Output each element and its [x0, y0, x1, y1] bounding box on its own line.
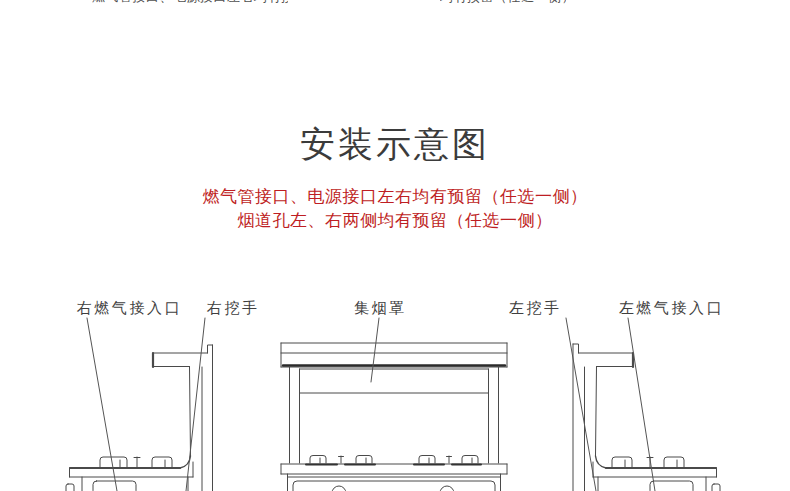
burner-grate	[462, 456, 478, 464]
drawer-handle	[93, 481, 136, 491]
counter-body	[70, 462, 194, 477]
hood-band	[281, 343, 507, 367]
side-columns	[290, 367, 499, 463]
leader-line	[566, 318, 596, 491]
installation-diagram	[40, 295, 760, 491]
cabinet-foot	[712, 484, 720, 491]
right-side-view	[566, 318, 720, 491]
section-title: 安装示意图	[0, 121, 790, 168]
notice-line-1: 燃气管接口、电源接口左右均有预留（任选一侧）	[0, 185, 790, 208]
drawer-front	[293, 481, 495, 491]
cooktop-band	[281, 464, 507, 477]
top-cutoff-text-left: 燃气管接口、电源接口左右均有预留	[92, 0, 288, 4]
top-cutoff-text-right: 均有预留（任选一侧）	[440, 0, 566, 4]
grate-center-pin	[447, 456, 452, 463]
burner-grate	[152, 457, 172, 467]
drawer-knob	[332, 486, 346, 491]
grate-center-pin	[134, 457, 140, 467]
cabinet-edges	[598, 477, 706, 491]
cabinet-edges	[82, 477, 188, 491]
drawer-knob	[440, 486, 454, 491]
counter-hook	[596, 456, 607, 468]
grate-center-pin	[339, 456, 344, 463]
drawer-handle	[650, 481, 693, 491]
burner-grate	[356, 456, 372, 464]
drawer-sides	[288, 477, 501, 491]
front-view	[281, 318, 507, 491]
back-panel	[202, 345, 213, 491]
notice-line-2: 烟道孔左、右两侧均有预留（任选一侧）	[0, 209, 790, 232]
left-side-view	[66, 318, 213, 491]
burner-grate	[310, 456, 326, 464]
leader-line	[371, 318, 379, 382]
burner-grate	[664, 457, 684, 467]
burner-grate	[612, 457, 632, 467]
hood-arm	[579, 353, 634, 456]
burner-grate	[100, 457, 127, 467]
leader-line	[87, 318, 117, 491]
burner-grate	[419, 456, 435, 464]
cabinet-foot	[66, 484, 74, 491]
